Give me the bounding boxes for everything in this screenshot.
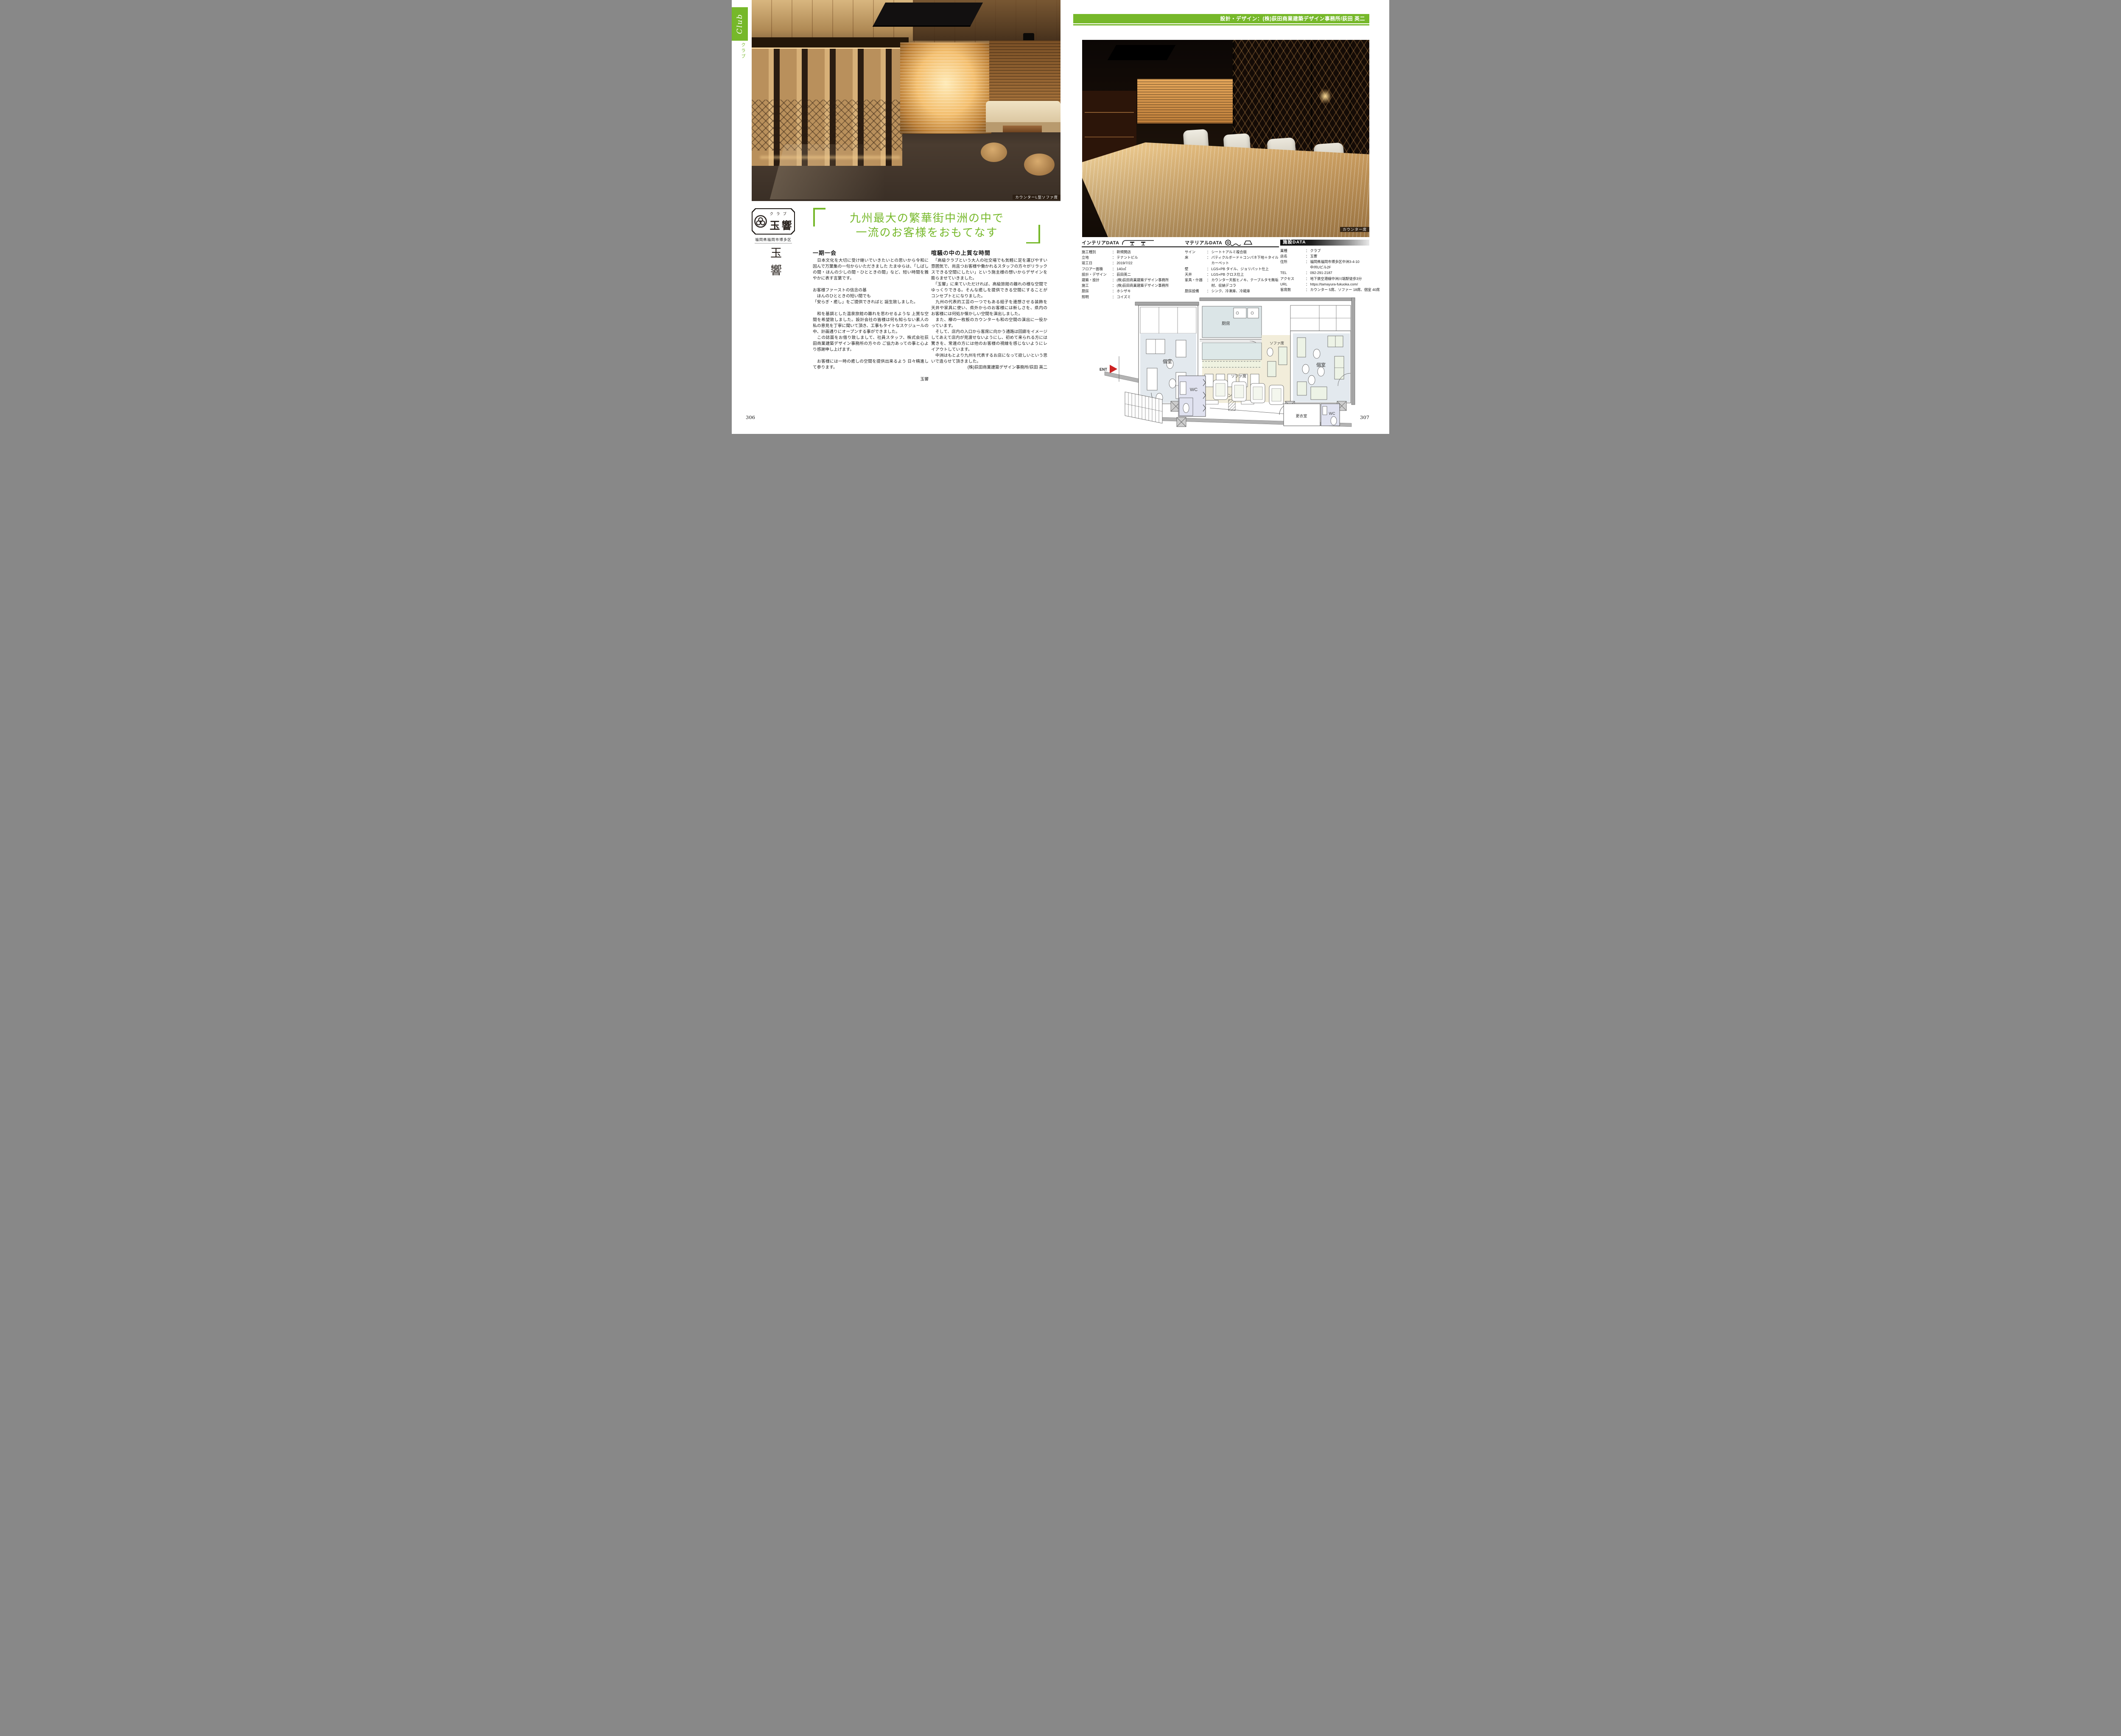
floor-glow-line (760, 156, 900, 159)
back-bar (1202, 343, 1262, 360)
headline-line2: 一流のお客様をおもてなす (817, 224, 1037, 240)
entrance-arrow (1110, 365, 1117, 373)
paragraph: 「玉響」に来ていただければ、高級旅館の離れの様な空間でゆっくりできる。そんな癒し… (931, 282, 1047, 299)
sink (1234, 308, 1246, 318)
data-row: URL：https://tamayura-fukuoka.com/ (1280, 282, 1369, 287)
wc-sink (1323, 406, 1327, 415)
paragraph: 日本文化を大切に受け継いでいきたいとの思いから令和に因んで万葉集の一句からいただ… (813, 258, 929, 282)
article-right-heading: 喧騒の中の上質な時間 (931, 249, 991, 257)
material-data-title: マテリアルDATA (1185, 240, 1222, 246)
paragraph: お客様ファーストの信念の基 (813, 288, 929, 294)
article-right-column: 「高級クラブという大人の社交場でも気軽に足を運びやすい雰囲気で、尚且つお客様や働… (931, 258, 1047, 371)
design-credit-banner: 設計・デザイン：(株)荻田商業建築デザイン事務所/荻田 英二 (1073, 14, 1369, 23)
room-label: ソファ席 (1270, 341, 1284, 345)
headline-line1: 九州最大の繁華街中洲の中で (817, 210, 1037, 225)
toilet (1183, 403, 1189, 413)
data-row: 立地：テナントビル (1082, 255, 1185, 260)
data-row: 家具・什器：カウンター天板ヒノキ、テーブルタモ無垢材、収納デコラ (1185, 277, 1279, 288)
sink (1248, 308, 1259, 318)
warm-slat-wall (1137, 79, 1235, 123)
shop-area-label: 福岡県福岡市博多区 (744, 237, 802, 242)
data-row: 厨房：ホシザキ (1082, 288, 1185, 294)
divider-rule (755, 243, 792, 243)
data-row: 壁：LGS+PB タイル、ジョリパット仕上 (1185, 266, 1279, 272)
material-roll-icon (1224, 239, 1254, 246)
paragraph: 和を基調とした温泉旅館の離れを思わせるような 上質な空間を希望致しました。設計会… (813, 311, 929, 335)
article-left-heading: 一期一会 (813, 249, 837, 257)
category-label-en: Club (736, 14, 744, 34)
ac-vent (873, 3, 983, 27)
entrance-label: ENT (1100, 367, 1108, 372)
category-label-ja: クラブ (740, 42, 747, 60)
paragraph: 九州の代表的工芸の一つでもある組子を連想させる装飾を天井や家具に使い、県外からの… (931, 299, 1047, 317)
page-number-right: 307 (1351, 414, 1369, 420)
facility-data-block: 施設DATA 業種：クラブ 店名：玉響 住所：福岡県福岡市博多区中洲3-4-10… (1280, 240, 1369, 293)
data-row: 床：パティクルボード＋コンパネ下地＋タイルカーペット (1185, 255, 1279, 266)
drum-stool (981, 143, 1007, 162)
room-label: ソファ席 (1231, 374, 1246, 378)
article-left-column: 日本文化を大切に受け継いでいきたいとの思いから令和に因んで万葉集の一句からいただ… (813, 258, 929, 383)
data-row: 天井：LGS+PB クロス仕上 (1185, 272, 1279, 277)
shop-name-vertical: 玉響 (767, 247, 783, 282)
data-row: 設計・デザイン：荻田英二 (1082, 272, 1185, 277)
paragraph: 「高級クラブという大人の社交場でも気軽に足を運びやすい雰囲気で、尚且つお客様や働… (931, 258, 1047, 282)
room-label: WC (1329, 411, 1335, 416)
sofa-bench (986, 101, 1060, 125)
shelf-light-line (1085, 112, 1134, 113)
interior-data-block: インテリアDATA 施工種別：新規開店 立地：テナントビル 竣工日：2019/7… (1082, 240, 1185, 300)
logo-type-label: クラブ (770, 211, 794, 216)
data-row: 施工：(株)荻田商業建築デザイン事務所 (1082, 283, 1185, 288)
counter-stools-icon (1121, 239, 1155, 246)
wall (1135, 302, 1199, 305)
facility-data-title-bar: 施設DATA (1280, 240, 1369, 246)
data-row: 客席数：カウンター 5席、ソファー 18席、個室 40席 (1280, 287, 1369, 293)
kumiko-lattice-pattern (752, 100, 902, 151)
data-row: フロアー面積：140㎡ (1082, 266, 1185, 272)
data-row: 竣工日：2019/7/22 (1082, 260, 1185, 266)
data-row: TEL：092-291-2187 (1280, 270, 1369, 276)
paragraph: 中洲はもとより九州を代表するお店になって欲しいという思いで造らせて頂きました。 (931, 353, 1047, 365)
paragraph: また、欅の一枚板のカウンターも和の空間の演出に一役かっています。 (931, 317, 1047, 329)
slat-wall-right (989, 40, 1060, 104)
room-label: 更衣室 (1296, 414, 1307, 418)
floor-plan: 個室 厨房 カウンター席 ソファ席 EN (1099, 297, 1369, 428)
paragraph: ほんのひとときの短い間でも (813, 294, 929, 299)
photo-caption-right: カウンター席 (1340, 227, 1369, 232)
headline-bracket-tl (813, 208, 825, 210)
page-number-left: 306 (746, 414, 755, 420)
facility-data-title: 施設DATA (1283, 240, 1306, 245)
family-crest-icon (753, 214, 768, 229)
data-row: 建築・設計：(株)荻田商業建築デザイン事務所 (1082, 277, 1185, 283)
headline-bracket-br (1038, 225, 1040, 243)
shelf-light-line (1085, 137, 1134, 137)
data-row: サイン：シート＋アルミ複合版 (1185, 249, 1279, 255)
material-data-block: マテリアルDATA サイン：シート＋アルミ複合版 床：パティクルボード＋コンパネ… (1185, 240, 1279, 294)
paragraph: この誌面をお借り致しまして、社員スタッフ、株式会社荻田商業建築デザイン事務所の方… (813, 335, 929, 353)
paragraph: そして、店内の入口から客席に向かう通路は回廊をイメージしてあえて店内が見渡せない… (931, 329, 1047, 353)
pendant-light (1320, 89, 1331, 103)
counter-top (1202, 361, 1262, 368)
floor-vent (1206, 400, 1218, 404)
logo-shop-name: 玉響 (770, 217, 794, 232)
data-row: 店名：玉響 (1280, 254, 1369, 259)
data-row: 厨房設備：シンク、冷凍庫、冷蔵庫 (1185, 288, 1279, 294)
headline-bracket-tl (813, 208, 815, 226)
banner-underline (1073, 24, 1369, 25)
headline-bracket-br (1026, 242, 1040, 244)
design-credit-text: 設計・デザイン：(株)荻田商業建築デザイン事務所/荻田 英二 (1220, 15, 1369, 22)
interior-photo-right: カウンター席 (1082, 40, 1369, 237)
glowing-doorway-wall (900, 42, 991, 134)
wall (1352, 298, 1355, 405)
toilet (1331, 417, 1337, 425)
data-row: 施工種別：新規開店 (1082, 249, 1185, 255)
room-label: WC (1190, 387, 1198, 392)
magazine-spread: Club クラブ 設計・デザイン：(株)荻田商業建築デザイン事務所/荻田 英二 … (732, 0, 1389, 434)
wall (1200, 298, 1355, 301)
room-label: 個室 (1163, 358, 1172, 364)
data-row: 住所：福岡県福岡市博多区中洲3-4-10 中州Uビル2F (1280, 259, 1369, 270)
interior-photo-left: カウンターL型ソファ席 (752, 0, 1060, 201)
paragraph: 「安らぎ・癒し」をご提供できればと 誕生致しました。 (813, 299, 929, 305)
paragraph: お客様には一時の癒しの空間を提供出来るよう 日々精進して参ります。 (813, 359, 929, 371)
carpet-light-streak (770, 144, 963, 199)
ac-vent (1108, 45, 1176, 60)
room-label: 厨房 (1222, 321, 1230, 326)
wc-sink (1180, 382, 1186, 394)
counter-stool (1205, 374, 1213, 387)
data-row: 業種：クラブ (1280, 248, 1369, 254)
closet-band (1140, 307, 1196, 333)
designer-credit: (株)荻田商業建築デザイン事務所/荻田 英二 (931, 365, 1047, 371)
interior-data-title: インテリアDATA (1082, 240, 1119, 246)
shop-logo-box: クラブ 玉響 (752, 208, 795, 235)
kumiko-lattice-pattern (1233, 40, 1369, 161)
room-label: 個室 (1316, 362, 1326, 368)
category-tab: Club (732, 7, 748, 41)
wave-texture (900, 42, 991, 134)
low-table (1003, 126, 1042, 132)
data-row: アクセス：地下鉄空港線中洲川端駅徒歩3分 (1280, 276, 1369, 282)
photo-caption-left: カウンターL型ソファ席 (1013, 195, 1060, 200)
drum-stool (1024, 154, 1055, 176)
owner-signature: 玉響 (813, 377, 929, 383)
kumiko-screen-wall (1233, 40, 1369, 161)
